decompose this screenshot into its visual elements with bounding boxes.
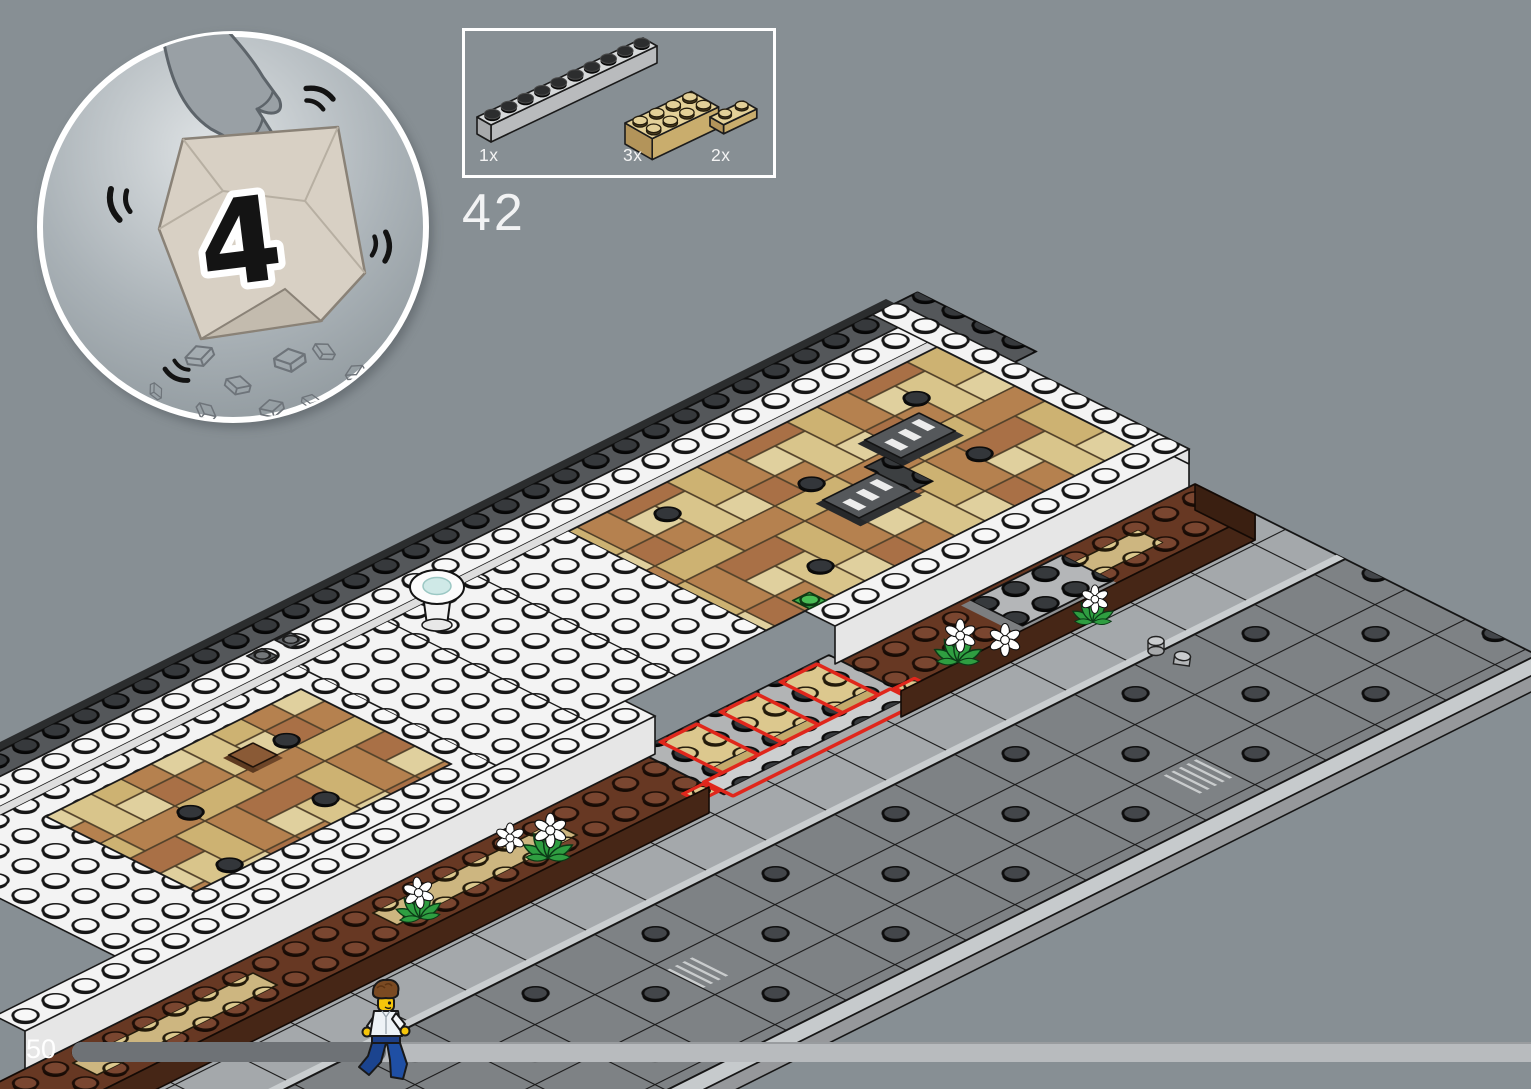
progress-track: [72, 1042, 1531, 1062]
part-qty-label: 1x: [479, 145, 498, 166]
bag-callout: 4: [33, 21, 433, 433]
instruction-page: 4: [0, 0, 1531, 1089]
progress-fill: [72, 1042, 386, 1062]
minifig-progress-marker: [341, 976, 431, 1089]
step-number: 42: [462, 183, 526, 243]
bag-number: 4: [191, 169, 289, 316]
part-qty-label: 3x: [623, 145, 642, 166]
page-number: 50: [26, 1034, 56, 1065]
part-qty-label: 2x: [711, 145, 730, 166]
part-icon-plate-1x2: [702, 91, 774, 147]
parts-box: 1x 3x 2x: [462, 28, 776, 178]
